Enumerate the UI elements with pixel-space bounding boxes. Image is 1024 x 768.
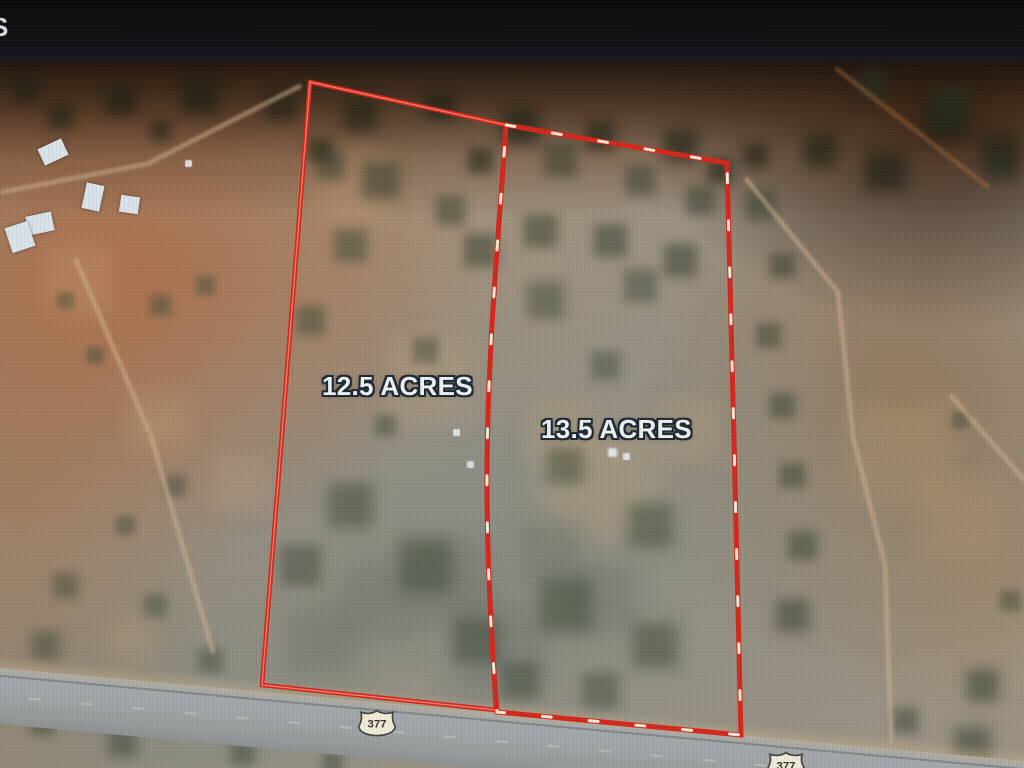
partial-text: S [0, 12, 8, 43]
highway-shield-377: 377 [765, 751, 807, 768]
route-number: 377 [367, 719, 386, 731]
top-black-bar: S [0, 0, 1024, 62]
parcel-boundaries [0, 0, 1024, 768]
parcel-acreage-label: 13.5 ACRES [541, 414, 692, 445]
parcel-acreage-label: 12.5 ACRES [322, 371, 473, 402]
highway-shield-377: 377 [356, 709, 398, 737]
satellite-map-view[interactable]: 12.5 ACRES 13.5 ACRES 377 377 S [0, 0, 1024, 768]
route-number: 377 [776, 761, 795, 768]
